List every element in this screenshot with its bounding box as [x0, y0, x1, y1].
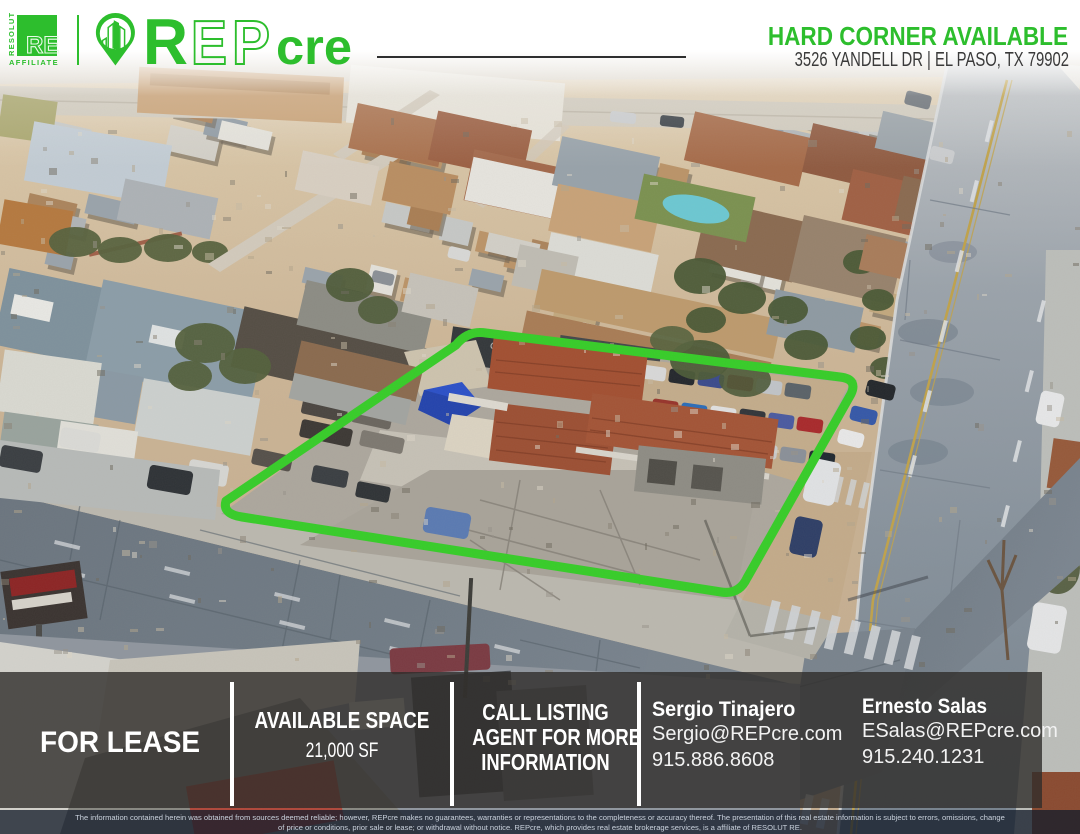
svg-text:R: R: [143, 6, 188, 78]
svg-text:P: P: [232, 9, 270, 78]
svg-text:AFFILIATE: AFFILIATE: [9, 58, 59, 67]
svg-text:RE: RE: [26, 32, 59, 59]
svg-text:RESOLUT: RESOLUT: [7, 12, 16, 56]
svg-text:E: E: [191, 9, 227, 78]
svg-text:cre: cre: [276, 19, 352, 75]
